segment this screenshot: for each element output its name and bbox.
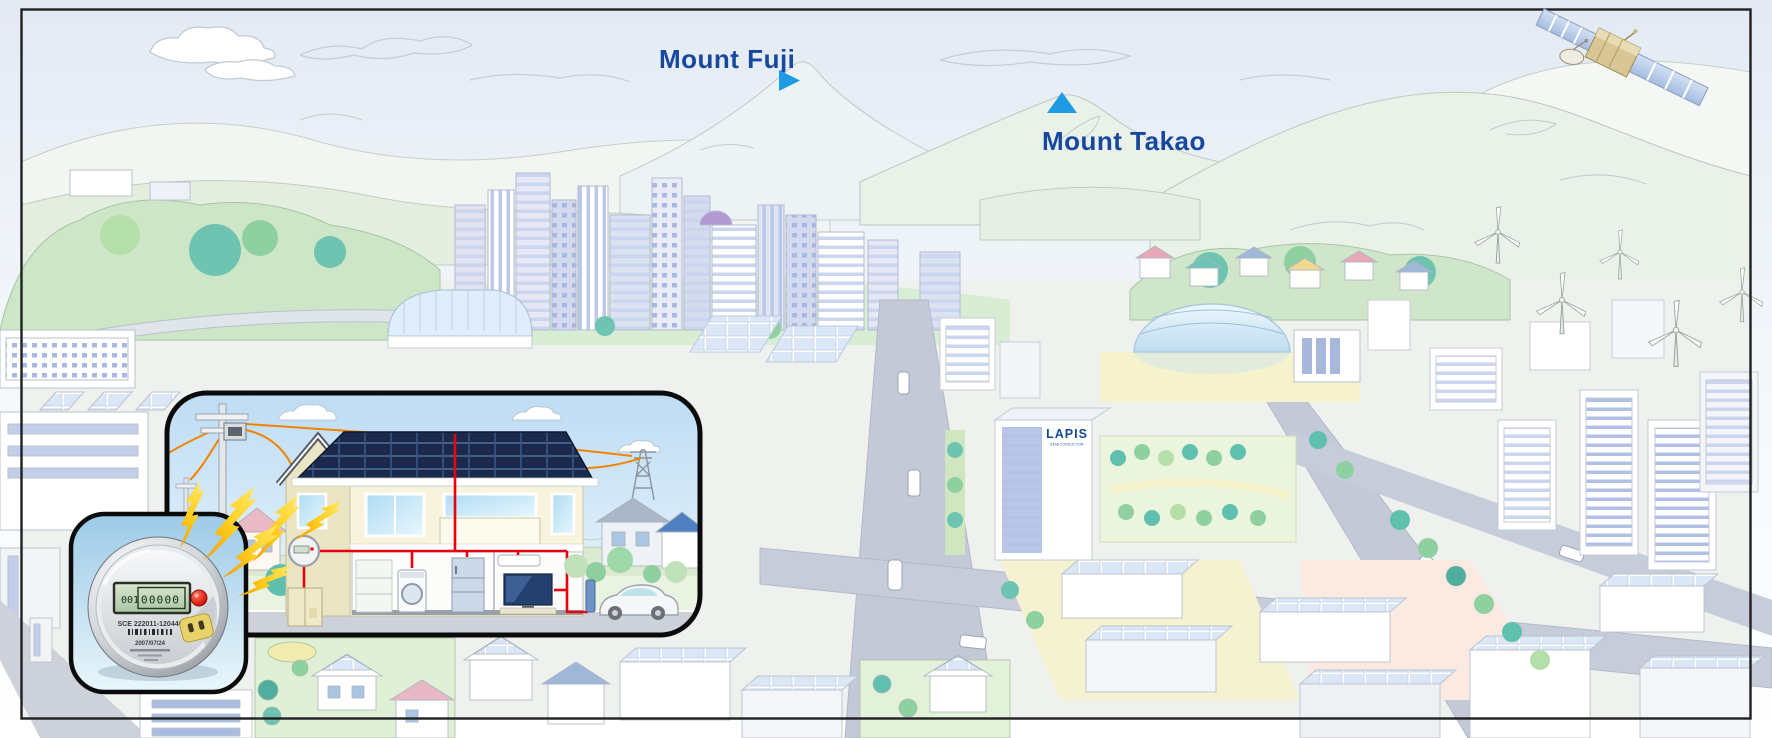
smart-city-illustration: LAPIS SEMICONDUCTOR bbox=[0, 0, 1772, 738]
air-conditioner bbox=[498, 555, 540, 566]
meter-reset-button bbox=[191, 590, 207, 606]
lapis-logo: LAPIS SEMICONDUCTOR bbox=[1046, 427, 1088, 447]
bottom-park-and-houses bbox=[255, 638, 455, 738]
meter-lcd: 001 00000 bbox=[114, 583, 190, 613]
city-park bbox=[1100, 436, 1296, 542]
mount-takao-text: Mount Takao bbox=[1042, 126, 1206, 156]
television bbox=[500, 574, 556, 614]
mount-fuji-text: Mount Fuji bbox=[659, 44, 795, 74]
meter-date: 2007/07/24 bbox=[135, 641, 166, 647]
illustration-canvas: LAPIS SEMICONDUCTOR bbox=[0, 0, 1772, 738]
lapis-logo-subtext: SEMICONDUCTOR bbox=[1050, 443, 1084, 447]
meter-serial: SCE 222011-120446 bbox=[118, 621, 183, 628]
refrigerator bbox=[452, 558, 484, 612]
meter-lcd-right: 00000 bbox=[141, 594, 180, 607]
solar-roof bbox=[298, 432, 592, 478]
washing-machine bbox=[398, 570, 426, 612]
lapis-logo-text: LAPIS bbox=[1046, 427, 1088, 441]
smart-meter-wall bbox=[289, 536, 319, 566]
meter-lcd-left: 001 bbox=[121, 595, 139, 606]
glass-vault-building bbox=[388, 290, 532, 348]
solar-house bbox=[278, 432, 598, 626]
